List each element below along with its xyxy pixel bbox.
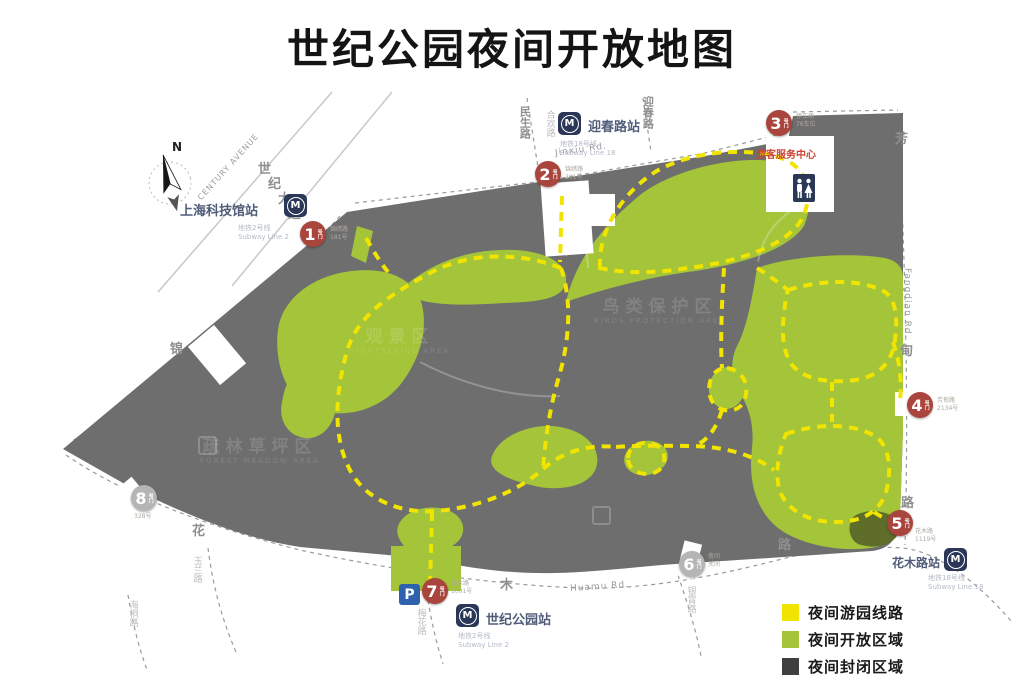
page-title: 世纪公园夜间开放地图 bbox=[0, 16, 1024, 77]
gate-note: 芳甸路2134号 bbox=[937, 397, 958, 413]
road-label-fangdian: 甸 bbox=[900, 340, 913, 359]
gate-note: 夜间关闭 bbox=[708, 553, 720, 569]
road-label-fangdian: 芳 bbox=[895, 128, 908, 147]
gate-marker-7: 7号门 bbox=[422, 578, 448, 604]
legend-item-closed: 夜间封闭区域 bbox=[782, 656, 904, 677]
gate-marker-1: 1号门 bbox=[300, 221, 326, 247]
century-park-night-map: 世纪公园夜间开放地图 N 疏林草坪区 FOREST MEADOW AREA 观景… bbox=[0, 0, 1024, 688]
road-label-huamu: 路 bbox=[778, 534, 791, 553]
legend-swatch-route bbox=[782, 604, 799, 621]
legend-swatch-closed bbox=[782, 658, 799, 675]
legend-item-open: 夜间开放区域 bbox=[782, 629, 904, 650]
road-label-hehuan: 合欢路 bbox=[543, 110, 556, 137]
restroom-icon bbox=[793, 174, 815, 202]
gate-note: 花木路1119号 bbox=[915, 528, 936, 544]
road-label-yinxiao: 银霄路 bbox=[684, 586, 697, 613]
road-label-haitong: 海桐路 bbox=[126, 600, 139, 627]
gate-note: 328号 bbox=[134, 513, 151, 521]
gate-note: 锦绣路301号 bbox=[565, 166, 583, 182]
gate-marker-2: 2号门 bbox=[535, 161, 561, 187]
station-line-info: 地铁2号线 Subway Line 2 bbox=[458, 632, 509, 650]
road-label-yulan: 玉兰路 bbox=[190, 556, 203, 583]
legend-item-route: 夜间游园线路 bbox=[782, 602, 904, 623]
gate-note: 花木路1001号 bbox=[451, 580, 472, 596]
metro-icon: M bbox=[944, 548, 967, 571]
gate-marker-4: 4号门 bbox=[907, 392, 933, 418]
station-label-tech-museum: 上海科技馆站 bbox=[180, 200, 258, 219]
road-label-fangdian: 路 bbox=[901, 492, 914, 511]
facility-icon-faint bbox=[592, 506, 611, 525]
facility-icon-faint bbox=[198, 436, 217, 455]
gate-note: 锦绣路181号 bbox=[330, 226, 348, 242]
station-label-huamu: 花木路站 bbox=[892, 554, 940, 571]
station-line-info: 地铁18号线 Subway Line 18 bbox=[928, 574, 983, 592]
station-label-yingchun: 迎春路站 bbox=[588, 116, 640, 135]
road-label-huamu: 花 bbox=[192, 520, 205, 539]
gate-marker-3: 3号门 bbox=[766, 110, 792, 136]
road-label-fangdian-en: Fangdian Rd. bbox=[902, 268, 912, 338]
station-line-info: 地铁18号线 Subway Line 18 bbox=[560, 140, 615, 158]
road-label-yingchun: 迎春路 bbox=[640, 96, 655, 129]
legend-swatch-open bbox=[782, 631, 799, 648]
gate-marker-6: 6号门 bbox=[679, 551, 705, 577]
metro-icon: M bbox=[284, 194, 307, 217]
compass-north-label: N bbox=[172, 140, 182, 154]
station-line-info: 地铁2号线 Subway Line 2 bbox=[238, 224, 289, 242]
parking-icon: P bbox=[399, 584, 420, 605]
metro-icon: M bbox=[456, 604, 479, 627]
metro-icon: M bbox=[558, 112, 581, 135]
gate-marker-8: 8号门 bbox=[131, 485, 157, 511]
visitor-service-center-label: 游客服务中心 bbox=[756, 146, 816, 161]
station-label-century-park: 世纪公园站 bbox=[486, 609, 551, 628]
legend: 夜间游园线路 夜间开放区域 夜间封闭区域 bbox=[782, 602, 904, 683]
gate-marker-5: 5号门 bbox=[887, 510, 913, 536]
road-label-huamu: 木 bbox=[500, 574, 513, 593]
road-label-jinxiu: 锦 bbox=[170, 338, 183, 357]
gate-note: 停车场76车位 bbox=[796, 113, 816, 129]
road-label-minsheng: 民生路 bbox=[517, 106, 532, 139]
road-label-meihua: 梅花路 bbox=[414, 608, 427, 635]
